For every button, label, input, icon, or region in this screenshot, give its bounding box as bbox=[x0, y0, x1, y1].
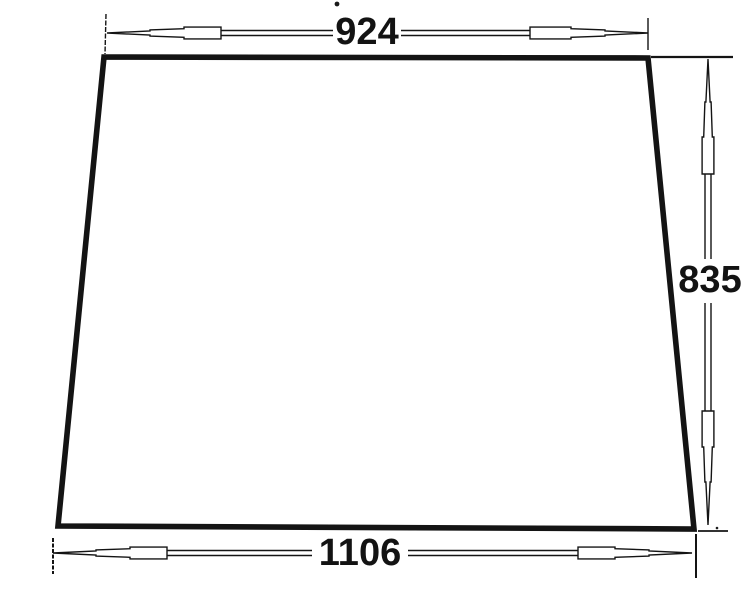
dimension-shaft-right bbox=[401, 31, 530, 36]
dimension-shaft-left bbox=[221, 31, 333, 36]
dimension-label-top-width: 924 bbox=[335, 13, 398, 51]
dimension-arrow-left-icon bbox=[53, 547, 167, 559]
trapezoid-panel-outline bbox=[58, 57, 694, 529]
dimension-shaft-lower bbox=[705, 303, 711, 413]
dimension-arrow-right-icon bbox=[578, 547, 692, 559]
dimension-shaft-right bbox=[408, 551, 578, 556]
dimension-label-bottom-width: 1106 bbox=[319, 534, 401, 572]
panel-edge bbox=[58, 57, 694, 529]
dimension-shaft-upper bbox=[705, 174, 711, 259]
drawing-geometry bbox=[0, 0, 750, 600]
dimension-arrow-up-icon bbox=[702, 59, 714, 174]
dimension-label-side-height: 835 bbox=[678, 261, 741, 299]
dimension-arrow-right-icon bbox=[530, 27, 648, 39]
scan-speck bbox=[335, 2, 340, 7]
scan-speck bbox=[716, 527, 719, 530]
technical-drawing: 924 835 1106 bbox=[0, 0, 750, 600]
dimension-shaft-left bbox=[167, 551, 312, 556]
dimension-arrow-left-icon bbox=[107, 27, 221, 39]
scan-specks bbox=[335, 2, 719, 530]
extension-tick-left bbox=[105, 14, 106, 54]
dimension-arrow-down-icon bbox=[702, 411, 714, 525]
